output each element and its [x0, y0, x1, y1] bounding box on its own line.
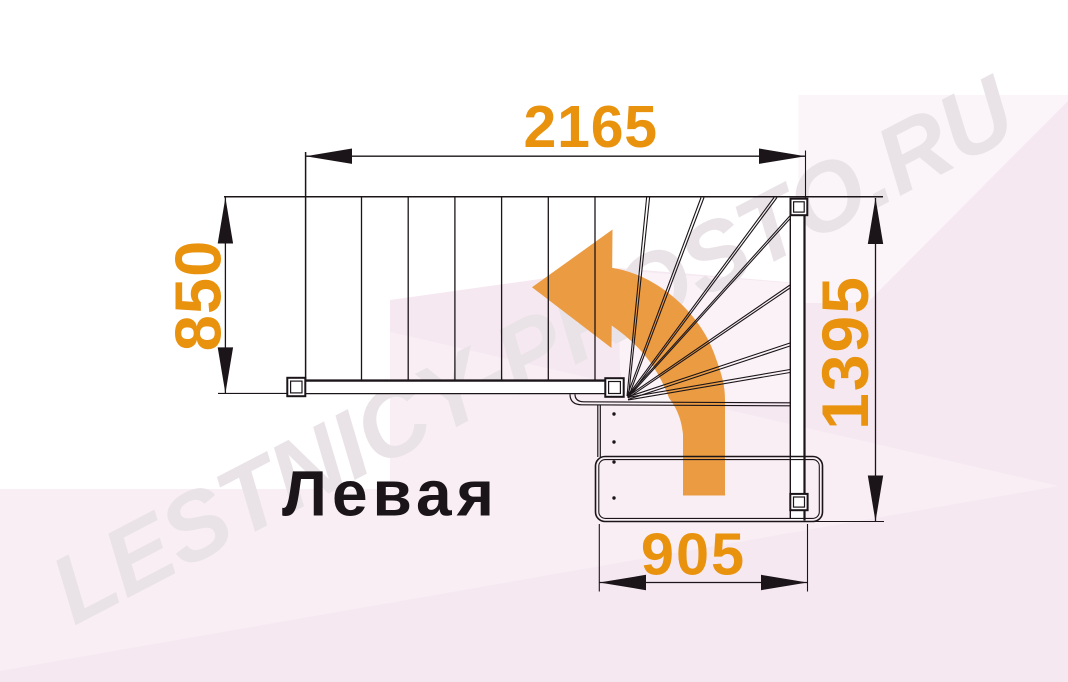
svg-text:2165: 2165 [523, 94, 657, 160]
svg-text:Левая: Левая [282, 458, 499, 530]
svg-text:1395: 1395 [808, 275, 882, 430]
svg-text:905: 905 [641, 521, 746, 588]
svg-text:850: 850 [162, 240, 235, 351]
